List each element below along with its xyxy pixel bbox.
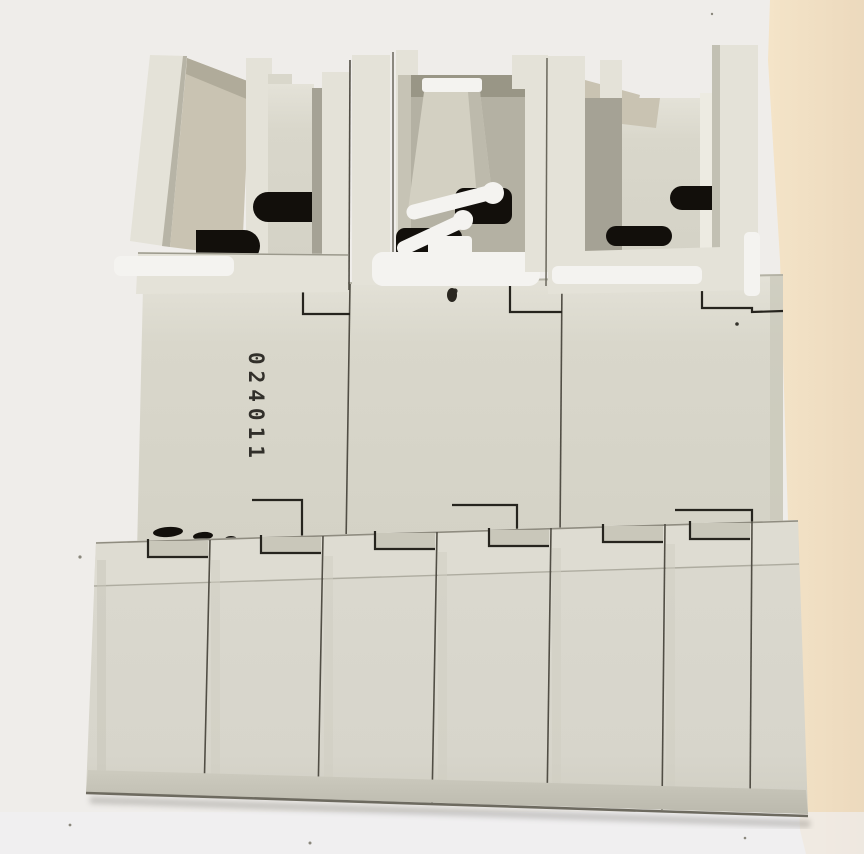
din-slot: [253, 192, 312, 222]
mould-speck: [447, 288, 457, 302]
pole-seam-upper: [349, 60, 350, 290]
foot-tab: [548, 56, 585, 270]
clip-corner: [744, 232, 760, 296]
din-clip-left: [114, 256, 234, 276]
din-clip-right: [552, 266, 702, 284]
foot-tab: [322, 72, 349, 272]
product-photo: 024011: [0, 0, 864, 854]
din-clip-tab: [428, 236, 472, 286]
tab-seam: [546, 58, 547, 286]
tab-shade: [712, 45, 720, 260]
din-slot: [606, 226, 672, 246]
bottom-band: [86, 520, 810, 824]
din-slot: [670, 186, 712, 210]
foot-tab: [600, 60, 622, 98]
foot-tab: [525, 58, 548, 272]
serial-marking: 024011: [244, 352, 268, 464]
foot-face: [268, 84, 314, 266]
foot-tab: [352, 55, 390, 285]
foot-tab: [512, 55, 548, 89]
din-foot-left: [114, 55, 349, 294]
breaker-device: 024011: [86, 45, 810, 824]
inner-edge-highlight: [700, 93, 712, 265]
mid-band: 024011: [137, 274, 783, 552]
din-foot-middle: [349, 50, 548, 302]
clip-latch-bar: [422, 78, 482, 92]
foot-step: [622, 98, 660, 128]
foot-gap: [312, 88, 322, 266]
mid-band-right-shade: [770, 276, 783, 532]
